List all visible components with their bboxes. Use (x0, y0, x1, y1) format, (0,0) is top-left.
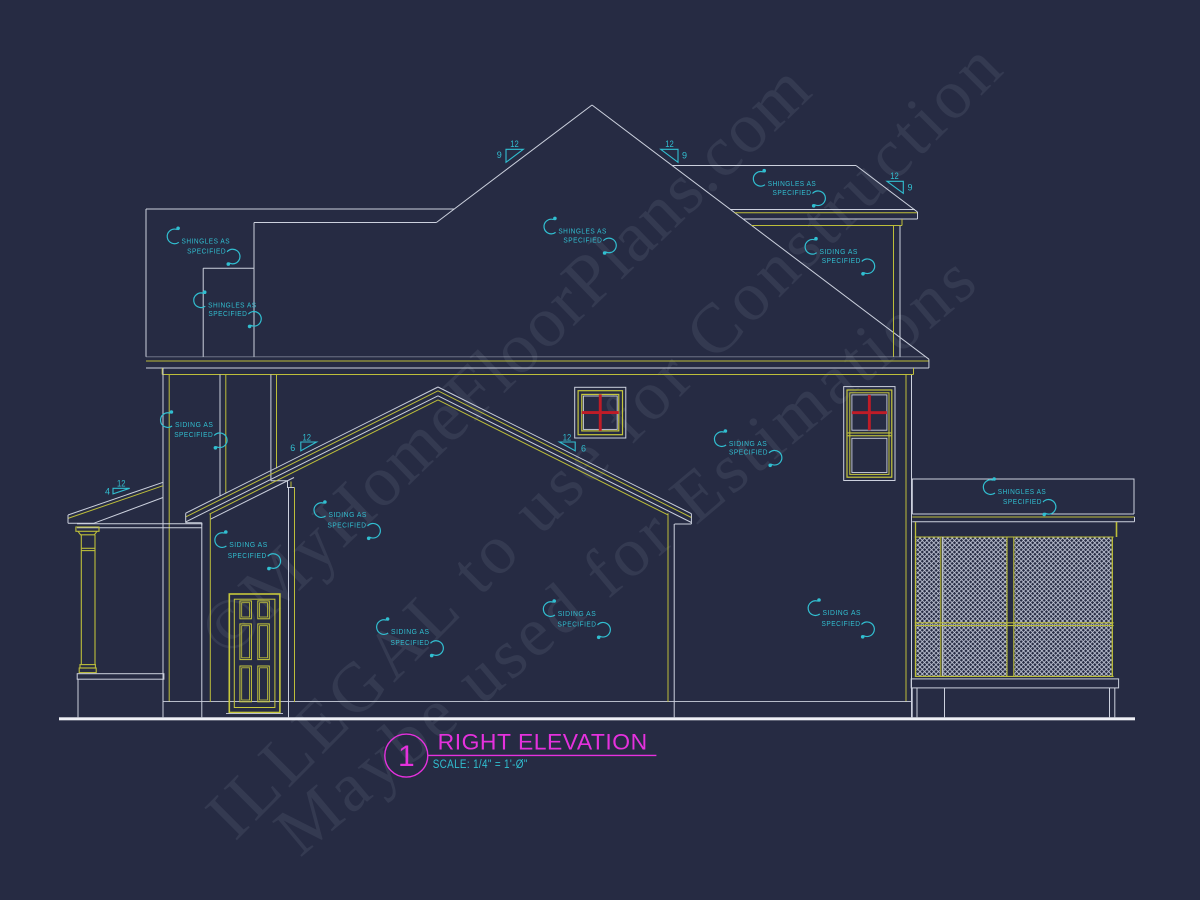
svg-text:12: 12 (890, 171, 899, 181)
svg-text:SPECIFIED: SPECIFIED (174, 430, 213, 439)
svg-text:SPECIFIED: SPECIFIED (822, 256, 861, 265)
svg-text:SIDING AS: SIDING AS (391, 627, 430, 636)
svg-text:SPECIFIED: SPECIFIED (773, 188, 812, 197)
svg-text:12: 12 (117, 479, 126, 489)
svg-text:SPECIFIED: SPECIFIED (1003, 497, 1042, 506)
svg-text:SPECIFIED: SPECIFIED (187, 246, 226, 255)
svg-text:12: 12 (510, 139, 519, 149)
svg-text:SIDING AS: SIDING AS (328, 510, 367, 519)
svg-text:1: 1 (398, 740, 415, 773)
svg-text:12: 12 (665, 139, 674, 149)
svg-text:SIDING AS: SIDING AS (823, 608, 862, 617)
svg-text:SPECIFIED: SPECIFIED (228, 551, 267, 560)
svg-text:SPECIFIED: SPECIFIED (328, 521, 367, 530)
svg-text:6: 6 (290, 443, 295, 453)
svg-text:SHINGLES AS: SHINGLES AS (558, 227, 607, 236)
svg-text:SPECIFIED: SPECIFIED (391, 638, 430, 647)
svg-text:SHINGLES AS: SHINGLES AS (768, 179, 817, 188)
svg-text:12: 12 (563, 432, 572, 442)
svg-text:SPECIFIED: SPECIFIED (558, 620, 597, 629)
svg-text:SHINGLES AS: SHINGLES AS (182, 236, 231, 245)
svg-text:SPECIFIED: SPECIFIED (208, 309, 247, 318)
svg-text:6: 6 (581, 443, 586, 453)
svg-text:SIDING AS: SIDING AS (558, 609, 597, 618)
svg-text:RIGHT ELEVATION: RIGHT ELEVATION (438, 730, 648, 755)
svg-text:SPECIFIED: SPECIFIED (729, 448, 768, 457)
svg-text:SIDING AS: SIDING AS (229, 540, 268, 549)
svg-text:SPECIFIED: SPECIFIED (563, 235, 602, 244)
svg-text:SIDING AS: SIDING AS (175, 420, 214, 429)
svg-text:SPECIFIED: SPECIFIED (822, 619, 861, 628)
svg-text:9: 9 (907, 183, 912, 193)
svg-text:9: 9 (682, 151, 687, 161)
svg-text:4: 4 (105, 487, 110, 497)
svg-text:SIDING AS: SIDING AS (819, 247, 858, 256)
svg-text:9: 9 (497, 150, 502, 160)
svg-text:12: 12 (303, 432, 312, 442)
svg-text:SCALE: 1/4" = 1'-Ø": SCALE: 1/4" = 1'-Ø" (433, 759, 528, 771)
svg-text:SHINGLES AS: SHINGLES AS (998, 487, 1047, 496)
